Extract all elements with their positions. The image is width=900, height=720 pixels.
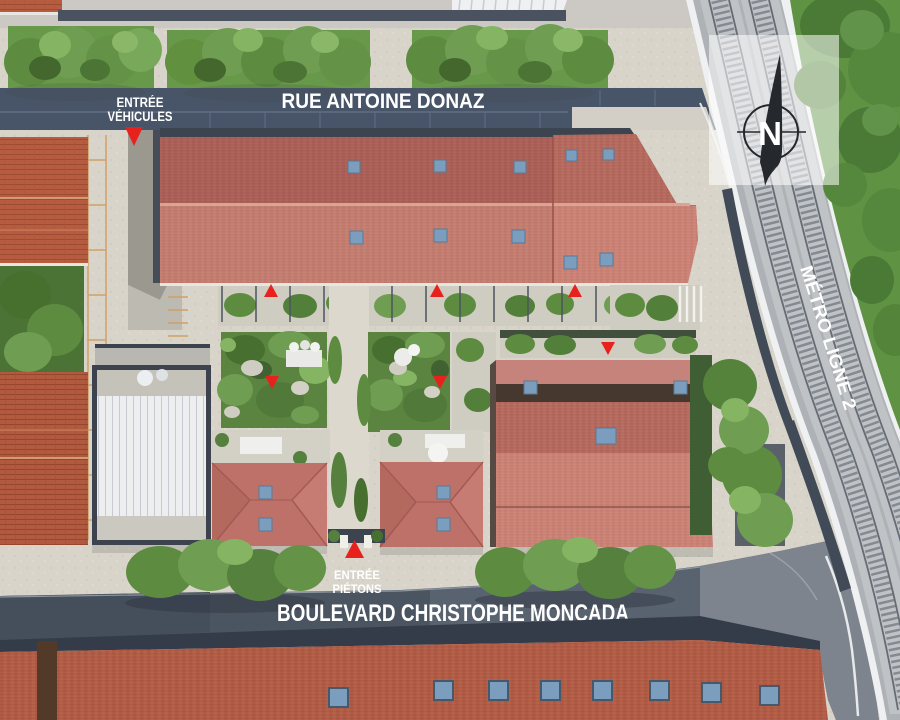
svg-text:VÉHICULES: VÉHICULES [108,109,173,124]
svg-text:ENTRÉE: ENTRÉE [334,567,380,582]
svg-text:PIÉTONS: PIÉTONS [333,581,382,596]
svg-text:RUE ANTOINE DONAZ: RUE ANTOINE DONAZ [282,90,485,113]
svg-text:ENTRÉE: ENTRÉE [117,95,164,110]
svg-text:N: N [758,115,782,152]
